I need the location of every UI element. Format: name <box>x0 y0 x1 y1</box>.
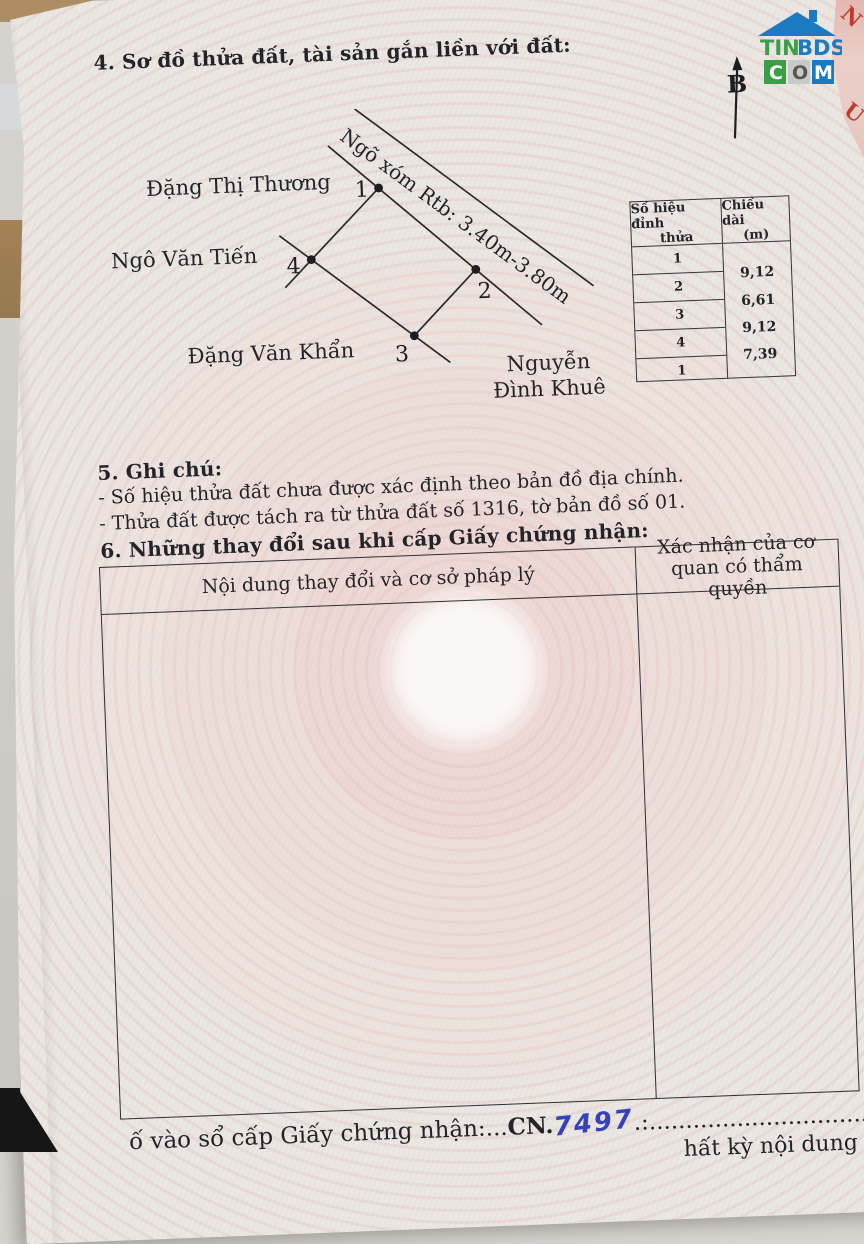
com-letter-c: C <box>769 62 783 84</box>
north-label: B <box>726 69 747 99</box>
changes-col-right-header: Xác nhận của cơ quan có thẩm quyền <box>635 540 840 594</box>
tinbds-watermark: TIN BDS C O M <box>752 8 842 100</box>
vertex-number-2: 2 <box>477 279 492 305</box>
neighbor-right-line2: Đình Khuê <box>493 373 606 403</box>
vertex-number-4: 4 <box>286 254 301 280</box>
vertex-id-column: 1 2 3 4 1 <box>632 244 728 382</box>
logo-text-bds: BDS <box>797 36 842 60</box>
logo-com-boxes: C O M <box>764 60 834 84</box>
vertex-number-3: 3 <box>395 342 410 368</box>
registry-cn-prefix: CN. <box>507 1112 554 1141</box>
house-icon <box>758 10 836 36</box>
changes-table-divider <box>635 547 657 1098</box>
vertex-length-table: Số hiệu đỉnh thửa Chiều dài (m) 1 2 3 4 … <box>629 195 796 382</box>
length-value: 7,39 <box>726 345 795 364</box>
neighbor-right: Nguyễn Đình Khuê <box>492 347 606 403</box>
neighbor-left: Ngô Văn Tiến <box>111 244 258 274</box>
col2-header-line1: Chiều dài <box>721 196 789 229</box>
length-value: 9,12 <box>725 318 794 337</box>
vertex-table-body: 1 2 3 4 1 9,12 6,61 9,12 7,39 <box>632 241 795 382</box>
section4-title: 4. Sơ đồ thửa đất, tài sản gắn liền với … <box>93 33 571 75</box>
vertex-id-cell: 1 <box>636 356 727 386</box>
paper-crease <box>5 4 67 1244</box>
col1-header-line1: Số hiệu đỉnh <box>630 199 721 232</box>
edge-3-2 <box>412 269 478 335</box>
col1-header-line2: thửa <box>660 230 694 246</box>
parcel-lines <box>275 100 597 369</box>
com-letter-o: O <box>792 62 808 84</box>
vertex-table-header-col1: Số hiệu đỉnh thửa <box>630 199 723 246</box>
vertex-id-cell: 4 <box>635 328 726 359</box>
registry-number-handwritten: 7497 <box>552 1104 635 1143</box>
road-edge-inner <box>328 138 542 333</box>
vertex-table-header-col2: Chiều dài (m) <box>721 196 790 243</box>
logo-text-tin: TIN <box>760 36 800 60</box>
house-roof <box>758 12 836 36</box>
registry-label: ố vào sổ cấp Giấy chứng nhận:... <box>129 1115 508 1156</box>
vertex-id-cell: 3 <box>634 300 725 331</box>
length-value: 6,61 <box>724 291 793 310</box>
vertex-number-1: 1 <box>354 177 369 203</box>
vertex-id-cell: 1 <box>632 244 723 275</box>
com-letter-m: M <box>814 62 833 84</box>
vertex-table-header: Số hiệu đỉnh thửa Chiều dài (m) <box>630 196 790 247</box>
col2-header-line2: (m) <box>743 227 770 243</box>
changes-table: Nội dung thay đổi và cơ sở pháp lý Xác n… <box>99 539 860 1120</box>
certificate-page: 4. Sơ đồ thửa đất, tài sản gắn liền với … <box>0 0 864 1244</box>
length-column: 9,12 6,61 9,12 7,39 <box>722 241 795 379</box>
vertex-id-cell: 2 <box>633 272 724 303</box>
length-value: 9,12 <box>723 263 792 282</box>
